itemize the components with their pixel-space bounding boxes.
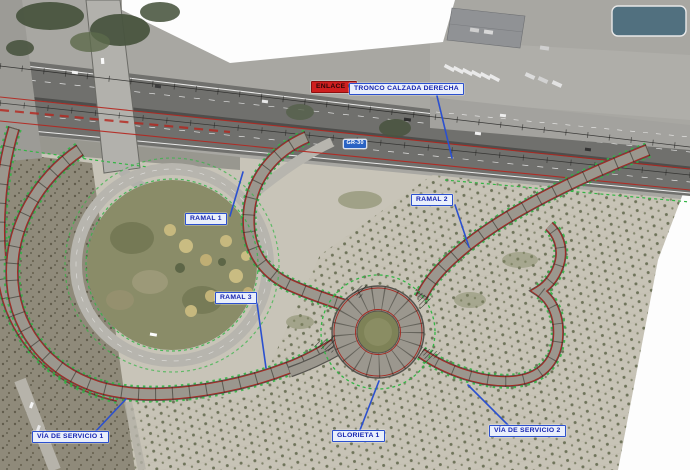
interchange-plan-map: ENLACE 6 TRONCO CALZADA DERECHA GR-30 RA… [0, 0, 690, 470]
via-de-servicio2-label: VÍA DE SERVICIO 2 [489, 425, 566, 437]
trees [16, 2, 84, 30]
via-de-servicio1-label: VÍA DE SERVICIO 1 [32, 431, 109, 443]
ramal3-label: RAMAL 3 [215, 292, 257, 304]
loop-infield [87, 180, 257, 350]
glorieta1-label: GLORIETA 1 [332, 430, 385, 442]
ramal2-label: RAMAL 2 [411, 194, 453, 206]
pool [612, 6, 686, 36]
tronco-calzada-derecha-label: TRONCO CALZADA DERECHA [349, 83, 464, 95]
aerial-plan-canvas [0, 0, 690, 470]
gr30-road-shield: GR-30 [343, 139, 367, 149]
ramal1-label: RAMAL 1 [185, 213, 227, 225]
